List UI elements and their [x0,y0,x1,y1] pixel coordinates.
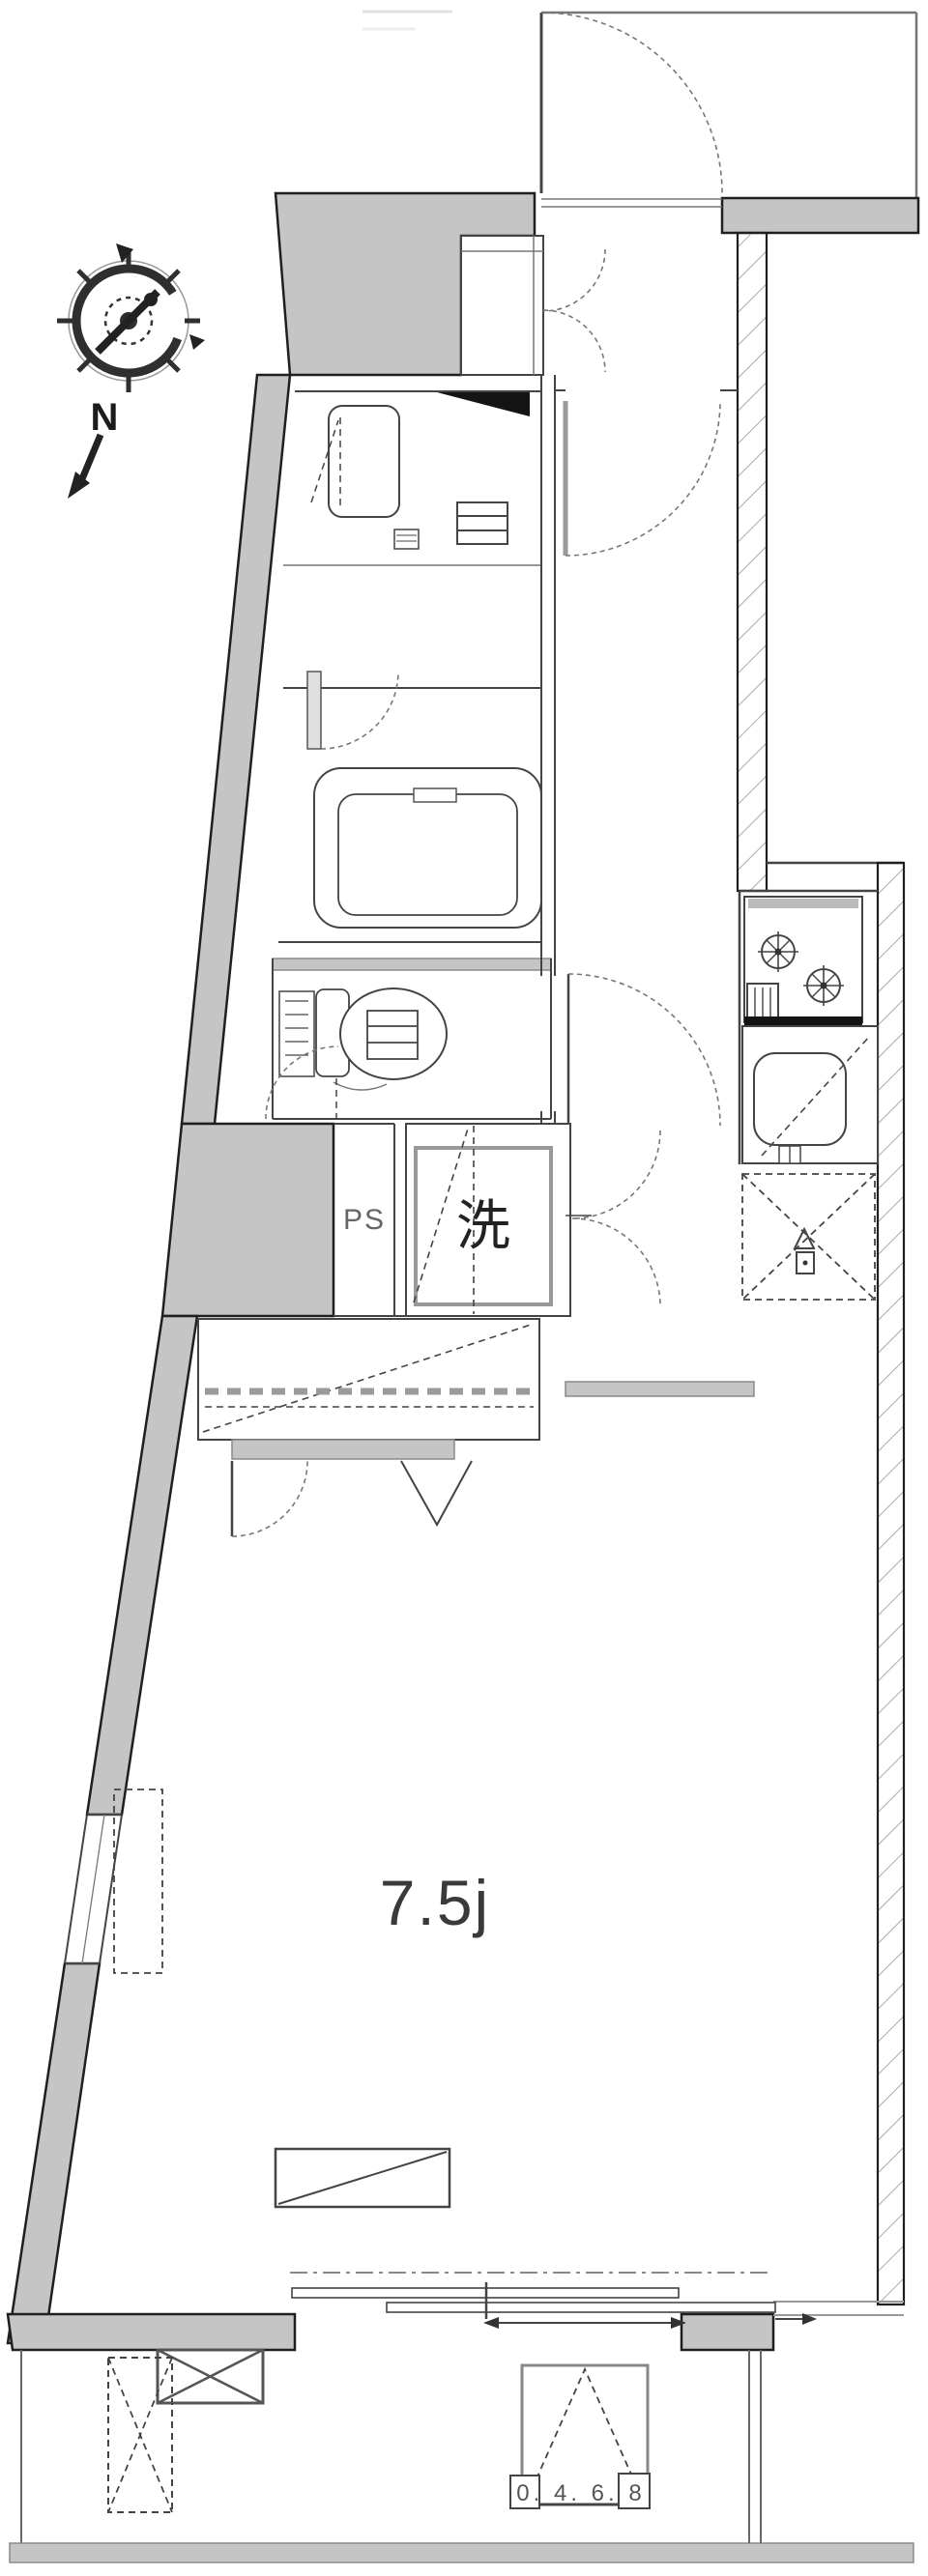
compass-north-label: N [91,396,119,439]
wall-right-upper [738,233,767,891]
folding-door [401,1461,472,1525]
sink-unit [742,1026,878,1163]
closet [198,1319,539,1536]
washer-label: 洗 [456,1195,510,1256]
wall-right-lower [878,863,904,2304]
floor-plan-drawing: PS 洗 [0,0,928,2576]
bath-door-arc [321,672,398,749]
wall-left-ps-mass [162,1124,333,1316]
balcony-edge [10,2543,913,2562]
washer-door-arc-top [572,1131,660,1218]
toilet-room [266,959,551,1119]
shelf-symbol [457,502,507,544]
entry-hall-door [555,390,738,556]
evacuation-hatch: 0. 4. 6. 8 [510,2365,650,2508]
washlet-control-panel [279,991,314,1076]
compass-right-arrow [189,334,205,350]
north-arrow [81,435,101,481]
compass-rose-icon: N [57,243,205,499]
wall-top-right [722,198,918,233]
closet-door-arc-bottom [543,310,605,372]
wall-left-lower [8,1963,100,2343]
corridor-outline [362,12,916,200]
bath-door-leaf [307,672,321,749]
washroom [283,375,555,688]
faucet-icon [779,1146,800,1163]
washer-space: 洗 [406,1124,660,1316]
main-room: 7.5j [65,1319,817,2329]
closet-threshold [232,1440,454,1459]
entry-step-wedge [437,392,530,416]
vanity-unit [329,406,399,517]
kitchen [565,891,878,1396]
shoe-closet [461,236,605,375]
counter-desk [275,2149,449,2207]
pipe-space-label: PS [343,1204,386,1236]
corridor-wall [541,688,555,1124]
toilet-fixture [316,988,447,1090]
wall-left-mid [87,1316,197,1815]
corridor-door [568,974,720,1126]
towel-rack-symbol [394,530,419,549]
closet-door-arc [232,1461,307,1536]
wall-left-upper [182,375,290,1124]
room-size-label: 7.5j [380,1867,490,1938]
washer-door-arc-bottom [572,1218,660,1306]
toilet-top-band [273,959,551,970]
bathtub [314,768,541,928]
wall-pier-bottom-right [681,2314,773,2350]
bathroom [278,672,541,942]
wall-bottom [8,2314,295,2350]
closet-door-arc-top [543,249,605,311]
floor-plan-page: PS 洗 [0,0,928,2576]
equipment-space-dashed [108,2358,172,2512]
balcony: 0. 4. 6. 8 [10,2350,913,2562]
entrance-door [541,13,722,193]
hatch-label: 0. 4. 6. 8 [516,2480,645,2506]
refrigerator-space [742,1174,875,1300]
room-threshold [565,1382,754,1396]
ac-outdoor-unit [158,2350,263,2403]
side-window [65,1789,162,1973]
stove-unit [744,897,862,1025]
